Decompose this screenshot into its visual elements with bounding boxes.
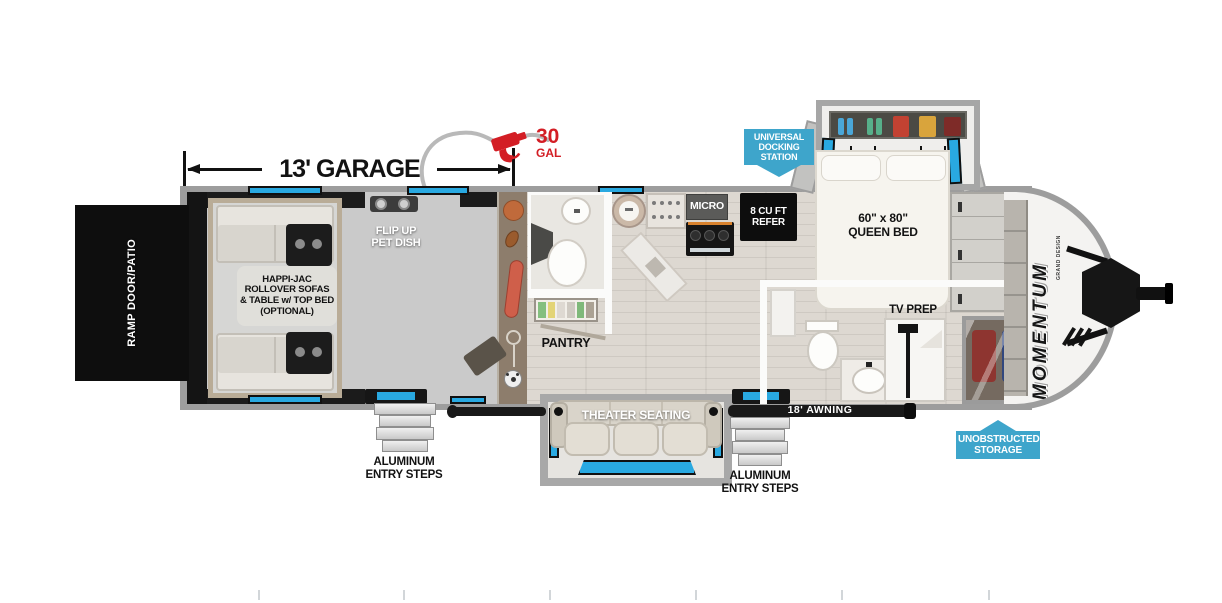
awning-end-cap [904, 403, 916, 419]
wall [605, 192, 612, 334]
ruler-tick [549, 590, 551, 600]
pantry-label: PANTRY [528, 336, 604, 350]
ruler-tick [258, 590, 260, 600]
hitch-coupler [1165, 283, 1173, 304]
queen-bed-label: 60" x 80" QUEEN BED [808, 212, 958, 239]
shelf-bottle [867, 118, 873, 135]
folded-towels [920, 330, 942, 348]
wall [760, 280, 1010, 287]
window [248, 395, 322, 404]
kitchen-sink-icon [612, 194, 646, 228]
drawer-handle [958, 250, 962, 260]
fuel-unit: GAL [536, 147, 576, 160]
momentum-logo: MOMENTUM [1030, 208, 1052, 400]
pantry-item [538, 302, 546, 318]
pantry-item [557, 302, 565, 318]
pantry-item [586, 302, 594, 318]
kitchen-drawers [646, 193, 686, 229]
ruler-tick [988, 590, 990, 600]
hitch-pinbox [1082, 258, 1140, 328]
tv-prep-cabinet [884, 318, 946, 402]
shelf-bag [893, 116, 909, 137]
tv-prep-label: TV PREP [878, 304, 948, 317]
garage-rear-wall [187, 192, 207, 404]
bathroom-sink-icon [561, 197, 591, 225]
pantry-item [548, 302, 556, 318]
pantry-item [577, 302, 585, 318]
microwave: MICRO [686, 194, 728, 220]
ruler-tick [403, 590, 405, 600]
skateboard-icon [504, 259, 525, 318]
floorplan-canvas: 13' GARAGE 30 GAL RAMP DOOR/PATIO [0, 0, 1222, 603]
tv-mount-icon [906, 324, 910, 398]
seat-cushion [613, 422, 659, 456]
soccer-ball-icon [504, 370, 522, 388]
shelf-bag [944, 117, 961, 136]
shelf-bottle [838, 118, 844, 135]
toilet-icon [547, 239, 587, 287]
garage-entry-door [365, 389, 427, 404]
ramp-door-label: RAMP DOOR/PATIO [126, 239, 138, 347]
shelf-bottle [847, 118, 853, 135]
sofa-table-bottom [286, 332, 332, 374]
wall [760, 280, 767, 404]
docking-station-callout: UNIVERSAL DOCKING STATION [744, 129, 814, 177]
happijac-label: HAPPI-JAC ROLLOVER SOFAS & TABLE w/ TOP … [237, 266, 337, 326]
drawer-handle [958, 202, 962, 212]
pet-dish-label: FLIP UP PET DISH [352, 225, 440, 250]
pantry-item [567, 302, 575, 318]
entry-steps-right [730, 417, 790, 466]
vanity-sink-icon [852, 367, 886, 394]
window [407, 186, 469, 195]
refrigerator: 8 CU FT REFER [740, 193, 797, 241]
arrow-head-left-icon [187, 164, 200, 174]
basketball-icon [503, 200, 524, 221]
football-icon [502, 228, 521, 250]
window [450, 396, 486, 404]
window [248, 186, 322, 195]
tennis-racket-icon [506, 330, 521, 345]
toilet-icon [807, 331, 839, 371]
shelf-bottle [876, 118, 882, 135]
mid-bathroom [528, 192, 607, 292]
awning-bar: 18' AWNING [728, 405, 912, 417]
entry-steps-right-label: ALUMINUM ENTRY STEPS [714, 470, 806, 496]
awning-bar-left [452, 407, 546, 416]
drawer-handle [958, 294, 962, 304]
entry-steps-left-label: ALUMINUM ENTRY STEPS [358, 456, 450, 482]
theater-seating-label: THEATER SEATING [556, 409, 716, 423]
brand-maker-label: GRAND DESIGN [1056, 220, 1062, 280]
faucet-icon [866, 362, 872, 367]
seat-cushion [662, 422, 708, 456]
entry-steps-left [374, 403, 436, 452]
pillow [886, 155, 946, 181]
awning-label: 18' AWNING [728, 405, 912, 417]
seat-cushion [564, 422, 610, 456]
shelf-bag [919, 116, 936, 137]
tv-mount-head-icon [898, 324, 918, 333]
bedroom-dresser [950, 192, 1006, 312]
fuel-value: 30 [536, 126, 576, 147]
sofa-table-top [286, 224, 332, 266]
cargo-storage-wall [497, 192, 527, 404]
storage-callout: UNOBSTRUCTED STORAGE [956, 420, 1040, 459]
ruler-tick [841, 590, 843, 600]
stove-icon [686, 222, 734, 256]
theater-rug [578, 460, 696, 475]
ramp-door: RAMP DOOR/PATIO [75, 205, 189, 381]
ruler-tick [695, 590, 697, 600]
dimension-end-bar-left [183, 151, 186, 189]
overhead-shelf [829, 111, 967, 139]
fuel-capacity-label: 30 GAL [536, 126, 576, 160]
pet-dish-icon [370, 196, 418, 212]
pantry-shelf [534, 298, 598, 322]
bath-door [770, 289, 796, 337]
pillow [821, 155, 881, 181]
callout-pointer-icon [757, 165, 801, 177]
callout-pointer-icon [980, 420, 1016, 431]
